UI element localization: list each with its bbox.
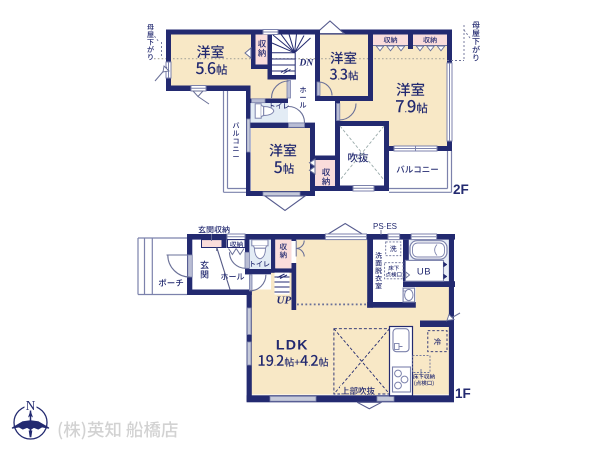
svg-text:LDK: LDK bbox=[276, 338, 309, 354]
svg-text:1F: 1F bbox=[455, 386, 471, 401]
svg-text:2F: 2F bbox=[453, 182, 469, 197]
svg-text:UB: UB bbox=[417, 267, 431, 278]
svg-text:PS·ES: PS·ES bbox=[373, 222, 397, 231]
svg-text:UP: UP bbox=[277, 295, 292, 307]
svg-text:DN: DN bbox=[299, 59, 315, 69]
